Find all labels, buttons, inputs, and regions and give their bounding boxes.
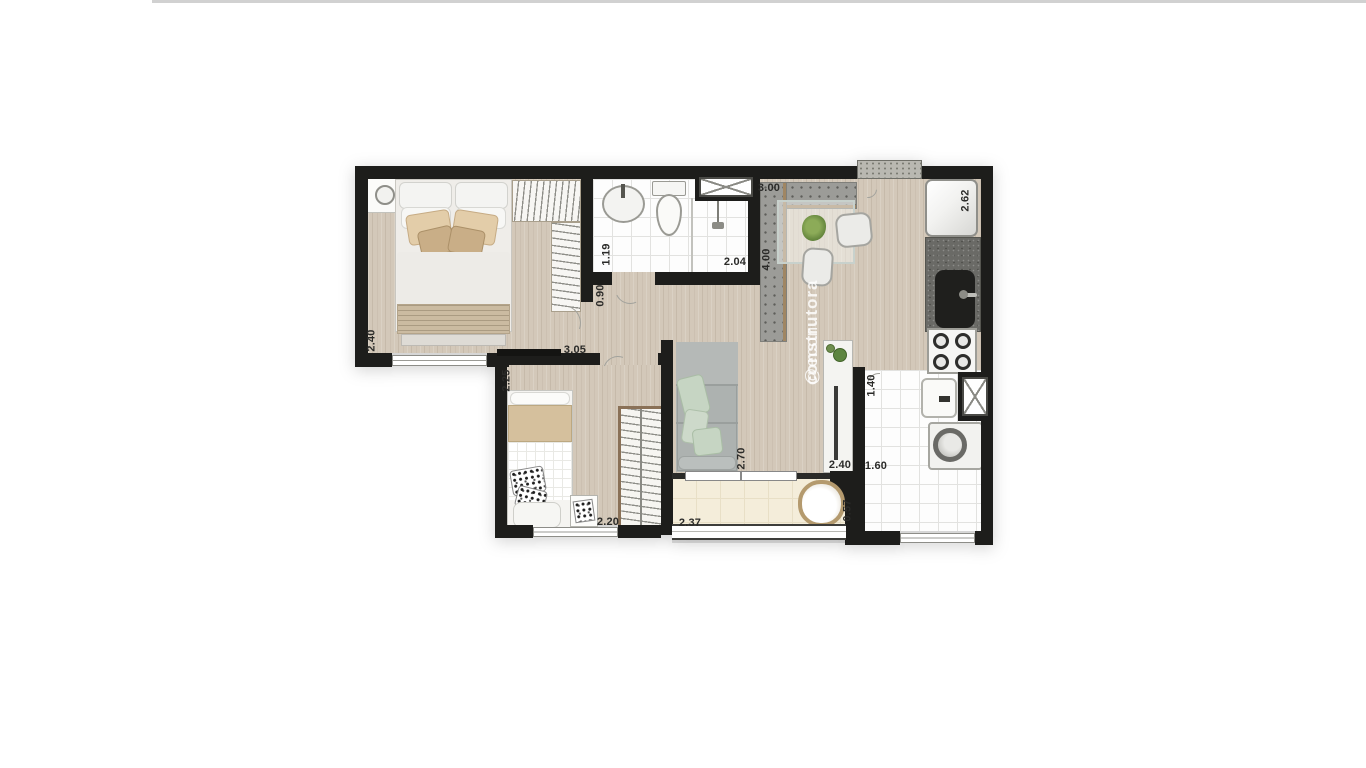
- washing-machine-door-icon: [933, 428, 967, 462]
- entry-landing: [857, 160, 922, 179]
- bed-duvet: [397, 252, 510, 304]
- dim-label-bedroom2-length: 2.20: [591, 516, 625, 529]
- kitchen-faucet-icon: [959, 290, 968, 299]
- wall: [975, 531, 993, 545]
- dim-label-master-length: 3.05: [558, 344, 592, 357]
- burner-icon: [955, 333, 971, 349]
- dimension-bar: [497, 349, 561, 356]
- bed-pillow: [455, 182, 508, 209]
- wall: [495, 525, 533, 538]
- dim-label-hall-width: 0.90: [595, 279, 608, 313]
- dim-label-master-width: 2.40: [366, 324, 379, 358]
- wardrobe: [551, 222, 581, 312]
- dining-chair: [834, 211, 873, 249]
- bed-pillow: [399, 182, 452, 209]
- water-heater-label: [939, 396, 950, 402]
- bed-pillow: [510, 392, 570, 405]
- sofa-cushion-green: [691, 426, 723, 456]
- wall: [661, 340, 673, 535]
- page-background: 2.40 3.05 1.19 2.04 0.90 3.00 4.00 2.62 …: [0, 0, 1366, 768]
- wardrobe-rod: [640, 409, 642, 525]
- wall: [981, 166, 993, 545]
- nightstand-lamp-icon: [375, 185, 395, 205]
- watermark: @econconstrutora: [802, 295, 822, 475]
- dim-label-kitchen-counter: 3.00: [752, 182, 786, 195]
- tv-rack-handle: [834, 386, 838, 460]
- bed-blanket: [508, 405, 572, 442]
- dim-label-bedroom2-width: 2.25: [501, 364, 514, 398]
- dim-label-laundry-width: 1.40: [866, 369, 879, 403]
- laundry-side-window: [962, 377, 988, 416]
- image-top-border: [152, 0, 1366, 3]
- bed-bench: [401, 334, 506, 346]
- sofa-armrest: [678, 456, 736, 470]
- wall: [581, 166, 593, 302]
- shower-head-icon: [717, 198, 719, 224]
- bathroom-window: [699, 177, 753, 197]
- dim-label-kitchen-right: 2.62: [960, 184, 973, 218]
- wall: [355, 166, 857, 179]
- dim-label-living-width: 2.40: [823, 459, 857, 472]
- dim-label-kitchen-length: 4.00: [761, 243, 774, 277]
- watermark-suffix: construtora: [802, 280, 822, 385]
- shower-partition: [691, 198, 693, 272]
- dim-label-bathroom-length: 2.04: [718, 256, 752, 269]
- burner-icon: [933, 333, 949, 349]
- burner-icon: [933, 354, 949, 370]
- shower-head-icon: [712, 222, 724, 229]
- dim-label-living-depth: 2.70: [736, 442, 749, 476]
- wall: [655, 272, 760, 285]
- laundry-window: [900, 533, 975, 543]
- dim-label-balcony-depth: 0.57: [842, 494, 855, 528]
- bed-blanket: [397, 304, 510, 334]
- round-chair: [798, 480, 845, 527]
- dim-label-laundry-length: 1.60: [859, 460, 893, 473]
- floor-plan: 2.40 3.05 1.19 2.04 0.90 3.00 4.00 2.62 …: [355, 160, 995, 550]
- dim-label-bathroom-width: 1.19: [601, 238, 614, 272]
- burner-icon: [955, 354, 971, 370]
- wardrobe: [512, 180, 581, 222]
- dim-label-balcony-length: 2.37: [673, 517, 707, 530]
- kitchen-sink: [935, 270, 975, 328]
- master-bedroom-window: [392, 355, 487, 366]
- plant-icon: [833, 348, 847, 362]
- washbasin-faucet-icon: [621, 184, 625, 198]
